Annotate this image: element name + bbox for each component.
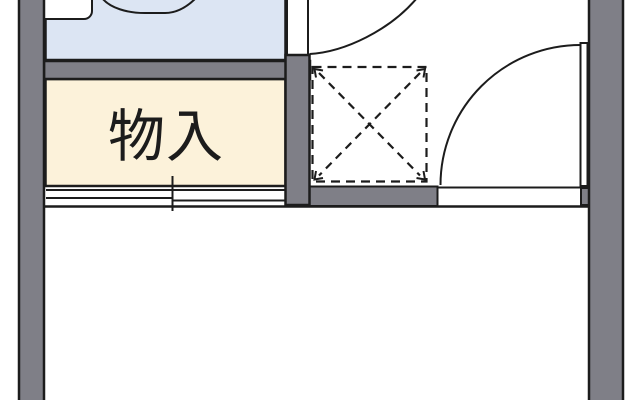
storage-hall-divider-wall — [286, 55, 310, 205]
washer-space-symbol — [313, 67, 427, 182]
right-door-swing-arc — [441, 45, 581, 185]
floorplan: 物入 — [0, 0, 640, 400]
bathroom-storage-divider-wall — [44, 61, 310, 79]
right-wall — [589, 0, 623, 400]
bathroom-doorway-opening — [287, 0, 308, 55]
left-wall — [19, 0, 44, 400]
floorplan-drawing — [0, 0, 640, 400]
right-door-leaf — [581, 43, 588, 186]
top-door-swing-arc — [310, 0, 418, 54]
storage-room-label: 物入 — [46, 80, 286, 184]
